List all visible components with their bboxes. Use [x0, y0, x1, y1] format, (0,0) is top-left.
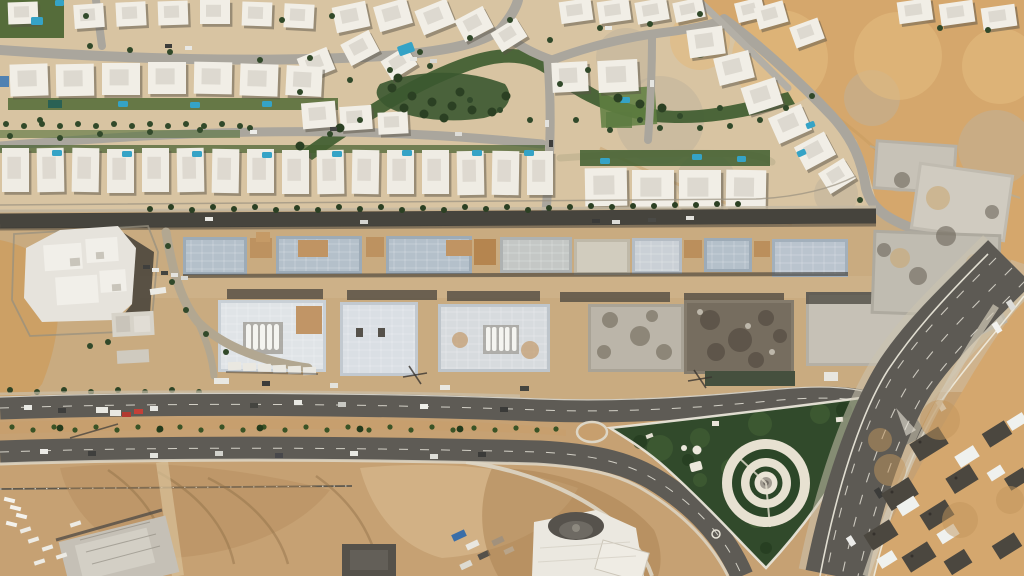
tree-boundary-20	[567, 204, 573, 210]
tree-boundary-28	[735, 201, 741, 207]
car-avenue-upper-0	[24, 405, 32, 410]
vehicle-site-road-2	[330, 383, 338, 388]
silo-group-2-2	[499, 327, 504, 351]
lawn-walkway	[0, 130, 240, 138]
villa-rowE-4-roof	[147, 157, 161, 179]
car-compound-7	[650, 80, 654, 87]
b9-mottle-0	[700, 310, 720, 330]
tree-compound-31	[783, 105, 789, 111]
tree-site-3	[203, 331, 209, 337]
ne-slab-mottle-4	[877, 243, 891, 257]
villa-rowA-0-roof	[14, 6, 29, 18]
tree-park-6	[400, 104, 409, 113]
tree-compound-36	[597, 25, 603, 31]
frame-core-dot-4	[911, 555, 914, 558]
roadworks-trucks-1	[110, 410, 121, 416]
villa-midrows-4-roof	[606, 66, 627, 83]
podium-1	[183, 237, 247, 275]
villa-cluster-right-2-roof	[687, 178, 708, 197]
car-parking-2	[161, 271, 168, 275]
median-bush-15	[324, 427, 329, 432]
tree-park-14	[502, 92, 511, 101]
tree-park-3	[448, 102, 457, 111]
tree-compound-22	[677, 113, 683, 119]
podium-7	[704, 238, 752, 272]
villa-rowE-15-roof	[532, 160, 545, 182]
trailer-row-0	[228, 362, 241, 370]
car-compound-6	[549, 140, 553, 147]
tree-boundary-0	[147, 206, 153, 212]
mall-roof-panel-1	[85, 237, 119, 263]
b8-mottle-4	[646, 310, 658, 322]
tree-boundary-5	[252, 204, 258, 210]
villa-rowE-10-roof	[357, 159, 371, 181]
villa-midrows-0-roof	[308, 106, 326, 120]
villa-staircase-0-roof	[694, 32, 714, 48]
building-b6	[340, 302, 418, 376]
triangle-mottle-dark-2	[760, 542, 772, 554]
silo-group-2-4	[512, 327, 517, 351]
b7-sand-patch-0	[452, 332, 468, 348]
desert-br-mottle-0	[920, 400, 960, 440]
tree-boundary-14	[441, 207, 447, 213]
villa-rowE-5-roof	[182, 157, 196, 179]
b6-openings-0	[356, 328, 363, 337]
pool-1	[55, 0, 64, 6]
car-avenue-lower-1	[88, 451, 96, 456]
b8-mottle-1	[630, 326, 650, 346]
villa-rowE-3-roof	[112, 158, 126, 180]
tree-compound-7	[347, 77, 353, 83]
ne-slab-mottle-2	[985, 205, 999, 219]
car-compound-4	[605, 26, 612, 30]
car-compound-1	[185, 46, 192, 50]
frame-core-dot-3	[873, 533, 876, 536]
frame-core-dot-0	[919, 441, 922, 444]
aerial-photo-stage	[0, 0, 1024, 576]
tree-site-4	[223, 349, 229, 355]
pool-17	[737, 156, 746, 162]
desert-br-mottle-1	[874, 454, 906, 486]
tree-site-1	[169, 279, 175, 285]
tree-compound-14	[327, 131, 333, 137]
tree-compound-56	[165, 123, 171, 129]
b7-sand-patch-1	[521, 341, 539, 359]
podium-block-1	[256, 232, 270, 242]
blue-tarp	[0, 76, 9, 87]
tree-compound-29	[727, 123, 733, 129]
b9-mottle-1	[728, 328, 752, 352]
tree-compound-57	[183, 121, 189, 127]
villa-rowC-5-roof	[247, 70, 267, 87]
pool-9	[192, 151, 202, 157]
car-compound-9	[330, 127, 337, 131]
podium-tan-4	[684, 240, 702, 258]
frame-core-dot-2	[929, 513, 932, 516]
row2-north-shadow-1	[347, 290, 437, 300]
car-avenue-lower-4	[275, 453, 283, 458]
tree-compound-1	[127, 47, 133, 53]
pool-10	[262, 152, 272, 158]
median-bush-17	[366, 427, 371, 432]
median-bush-18	[387, 424, 392, 429]
tree-park-0	[388, 84, 397, 93]
car-avenue-upper-6	[420, 404, 428, 409]
villa-rowC-2-roof	[110, 69, 129, 85]
tree-boundary-2	[189, 207, 195, 213]
median-bush-19	[408, 427, 413, 432]
ne-slab-mottle-0	[894, 172, 910, 188]
car-compound-2	[410, 57, 417, 61]
tree-compound-32	[809, 93, 815, 99]
median-palm-2	[257, 425, 264, 432]
trailer-row-1	[243, 363, 256, 371]
tree-park-12	[394, 74, 403, 83]
tree-compound-5	[417, 49, 423, 55]
car-boundary-road-0	[205, 217, 213, 221]
tree-boundary-26	[693, 202, 699, 208]
tree-compound-58	[201, 123, 207, 129]
tree-park-9	[614, 94, 623, 103]
b9-specks-1	[745, 323, 751, 329]
median-bush-3	[72, 427, 77, 432]
villa-midrows-3-roof	[559, 68, 578, 84]
tree-compound-19	[57, 135, 63, 141]
pool-16	[692, 154, 702, 160]
tree-compound-52	[93, 123, 99, 129]
car-avenue-lower-3	[215, 451, 223, 456]
tree-boundary-12	[399, 207, 405, 213]
villa-rowC-4-roof	[201, 68, 220, 84]
pool-14	[524, 150, 534, 156]
car-parking-3	[171, 273, 178, 277]
median-bush-13	[282, 427, 287, 432]
car-boundary-road-5	[360, 220, 368, 224]
white-shed-east	[824, 372, 838, 381]
roadworks-trucks-2	[122, 412, 131, 417]
median-bush-8	[177, 424, 182, 429]
tree-compound-49	[39, 121, 45, 127]
tree-compound-9	[427, 63, 433, 69]
villa-rowE-8-roof	[287, 159, 301, 181]
tree-compound-37	[647, 21, 653, 27]
lawn-cluster	[606, 112, 632, 128]
podium-8	[772, 239, 848, 277]
pool-11	[332, 151, 342, 157]
median-palm-0	[57, 425, 64, 432]
median-bush-4	[93, 424, 98, 429]
tree-boundary-25	[672, 202, 678, 208]
tree-compound-8	[387, 67, 393, 73]
median-bush-24	[513, 425, 518, 430]
tree-compound-11	[497, 107, 503, 113]
tree-compound-55	[147, 121, 153, 127]
tree-boundary-18	[525, 207, 531, 213]
tree-boundary-8	[315, 207, 321, 213]
pool-3	[190, 102, 200, 108]
desert-light-patch-1	[854, 12, 942, 100]
car-compound-0	[165, 44, 172, 48]
car-boundary-road-3	[648, 218, 656, 222]
median-bush-16	[345, 424, 350, 429]
villa-rowC-0-roof	[17, 70, 37, 87]
median-palm-3	[357, 426, 364, 433]
tree-compound-38	[697, 11, 703, 17]
villa-cluster-right-3-roof	[734, 177, 754, 196]
villa-cluster-right-1-roof	[640, 178, 661, 197]
tree-compound-21	[637, 117, 643, 123]
tree-compound-13	[357, 117, 363, 123]
car-avenue-lower-5	[350, 451, 358, 456]
tree-park-15	[296, 142, 305, 151]
row2-north-shadow-2	[447, 291, 540, 301]
tree-boundary-19	[546, 205, 552, 211]
pool-7	[52, 150, 62, 156]
vehicle-site-road-1	[262, 381, 270, 386]
silo-group-1-0	[246, 324, 251, 350]
median-bush-26	[553, 426, 558, 431]
pool-12	[402, 150, 412, 156]
villa-rowE-1-roof	[42, 157, 56, 179]
tree-compound-50	[57, 123, 63, 129]
b9-mottle-2	[758, 310, 774, 326]
tree-compound-44	[857, 197, 863, 203]
villa-rowE-2-roof	[77, 157, 91, 179]
tree-compound-33	[467, 35, 473, 41]
tree-boundary-27	[714, 201, 720, 207]
pool-0	[31, 17, 43, 25]
tree-compound-17	[147, 129, 153, 135]
villa-necorner-2-roof	[988, 9, 1006, 22]
tree-compound-34	[507, 17, 513, 23]
car-avenue-lower-6	[430, 454, 438, 459]
car-avenue-lower-7	[478, 452, 486, 457]
tree-park-7	[420, 110, 429, 119]
tree-compound-35	[547, 37, 553, 43]
ne-slab-mottle-3	[909, 267, 927, 285]
triangle-plaza-2	[681, 445, 687, 451]
tree-compound-54	[129, 123, 135, 129]
median-bush-14	[303, 424, 308, 429]
b9-specks-0	[697, 309, 703, 315]
tree-compound-28	[697, 125, 703, 131]
tree-park-5	[488, 108, 497, 117]
tree-boundary-17	[504, 204, 510, 210]
silo-group-2-1	[492, 327, 497, 351]
pool-15	[600, 158, 610, 164]
tree-compound-53	[111, 121, 117, 127]
car-parking-4	[181, 276, 188, 280]
villa-rowE-0-roof	[7, 157, 21, 179]
tree-compound-10	[467, 97, 473, 103]
villa-rowC-1-roof	[63, 70, 82, 86]
car-boundary-road-2	[612, 220, 620, 224]
tree-compound-12	[527, 117, 533, 123]
tree-compound-51	[75, 121, 81, 127]
tree-park-10	[636, 100, 645, 109]
median-bush-6	[135, 424, 140, 429]
tree-boundary-7	[294, 205, 300, 211]
tree-compound-30	[757, 117, 763, 123]
tree-boundary-10	[357, 206, 363, 212]
car-compound-3	[430, 59, 437, 63]
street-vertical-2	[648, 36, 652, 140]
podium-tan-3	[474, 239, 496, 265]
tree-boundary-3	[210, 204, 216, 210]
tree-compound-24	[557, 81, 563, 87]
triangle-plaza-1	[693, 446, 702, 455]
tree-compound-3	[257, 57, 263, 63]
median-bush-11	[240, 427, 245, 432]
villa-rowA-5-roof	[248, 7, 263, 20]
silo-group-2-3	[505, 327, 510, 351]
b9-specks-2	[769, 349, 775, 355]
silo-group-1-3	[267, 324, 272, 350]
median-bush-10	[219, 424, 224, 429]
silo-group-1-4	[274, 324, 279, 350]
mall-roof-unit-1	[96, 252, 104, 260]
dark-shed	[705, 371, 795, 386]
dome-center	[572, 524, 580, 532]
villa-topmid-1-roof	[604, 3, 621, 16]
b8-mottle-3	[597, 345, 611, 359]
villa-rowA-4-roof	[206, 5, 221, 17]
shed-2	[117, 349, 150, 364]
tree-compound-39	[83, 13, 89, 19]
villa-topmid-0-roof	[566, 3, 583, 16]
silo-group-2-0	[486, 327, 491, 351]
mall-roof-panel-0	[43, 243, 83, 272]
tree-boundary-6	[273, 207, 279, 213]
median-bush-22	[471, 425, 476, 430]
villa-rowE-14-roof	[497, 160, 511, 182]
car-avenue-lower-0	[40, 449, 48, 454]
villa-rowA-3-roof	[164, 6, 179, 19]
podium-tan-5	[754, 241, 770, 257]
tree-compound-2	[167, 49, 173, 55]
tree-compound-60	[237, 123, 243, 129]
tree-compound-47	[3, 121, 9, 127]
villa-rowE-12-roof	[427, 159, 441, 181]
car-compound-5	[545, 120, 549, 127]
villa-rowC-3-roof	[156, 68, 175, 84]
car-compound-8	[250, 130, 257, 134]
b9-mottle-4	[748, 352, 764, 368]
b8-mottle-0	[602, 312, 618, 328]
triangle-mottle-light-1	[690, 428, 710, 448]
villa-necorner-1-roof	[946, 5, 964, 18]
desert-br-mottle-3	[996, 486, 1024, 514]
mall-roof-unit-2	[112, 284, 121, 292]
silo-group-1-1	[253, 324, 258, 350]
triangle-sign-0	[712, 421, 719, 426]
boundary-road	[0, 216, 876, 221]
tree-compound-41	[329, 13, 335, 19]
pool-4	[262, 101, 272, 107]
tree-park-11	[658, 104, 667, 113]
tree-compound-46	[7, 133, 13, 139]
median-palm-4	[457, 426, 464, 433]
tree-boundary-4	[231, 206, 237, 212]
median-bush-2	[51, 424, 56, 429]
frame-core-dot-1	[891, 491, 894, 494]
satellite-image	[0, 0, 1024, 576]
row2-north-shadow-3	[560, 292, 670, 302]
car-avenue-upper-2	[150, 406, 158, 411]
tree-boundary-23	[630, 203, 636, 209]
tree-compound-40	[279, 17, 285, 23]
shed-1-roofA	[116, 316, 131, 333]
ne-slab-mottle-1	[936, 226, 956, 246]
tree-compound-25	[585, 67, 591, 73]
villa-rowA-2-roof	[122, 6, 138, 19]
vehicle-site-road-0	[214, 378, 229, 384]
vehicle-site-road-4	[520, 386, 529, 391]
median-bush-25	[534, 427, 539, 432]
shed-1-roofB	[134, 316, 151, 333]
podium-6	[632, 238, 682, 274]
podium-tan-2	[366, 237, 384, 257]
tree-compound-26	[607, 127, 613, 133]
villa-rowA-6-roof	[290, 8, 306, 21]
car-avenue-upper-5	[338, 402, 346, 407]
vehicle-site-road-3	[440, 385, 450, 390]
car-avenue-upper-1	[58, 408, 66, 413]
car-compound-10	[455, 132, 462, 136]
roadworks-trucks-3	[134, 409, 143, 414]
b9-mottle-3	[707, 343, 725, 361]
tree-compound-20	[573, 117, 579, 123]
desert-br-mottle-2	[942, 502, 978, 538]
tree-park-1	[408, 92, 417, 101]
villa-rowE-11-roof	[392, 159, 406, 181]
b6-openings-1	[378, 328, 385, 337]
tree-site-2	[183, 307, 189, 313]
b8-mottle-2	[656, 344, 672, 360]
frame-core-dot-5	[955, 477, 958, 480]
tree-compound-0	[87, 43, 93, 49]
villa-necorner-0-roof	[904, 3, 922, 16]
roadworks-trucks-0	[96, 407, 108, 413]
tree-boundary-24	[651, 203, 657, 209]
tree-compound-4	[307, 55, 313, 61]
median-bush-20	[429, 424, 434, 429]
podium-court-1	[298, 240, 328, 257]
podium-5	[574, 239, 630, 275]
car-avenue-upper-7	[500, 407, 508, 412]
car-boundary-road-4	[686, 216, 694, 220]
lap-pool	[48, 100, 62, 108]
mall-roof-unit-0	[70, 258, 81, 267]
tree-park-8	[440, 114, 449, 123]
tree-park-4	[468, 106, 477, 115]
tree-boundary-13	[420, 205, 426, 211]
tree-compound-48	[21, 123, 27, 129]
mall-roof-panel-2	[55, 275, 99, 306]
tree-road-north-0	[7, 387, 13, 393]
villa-rowE-7-roof	[252, 158, 266, 180]
tree-boundary-11	[378, 204, 384, 210]
triangle-mottle-light-2	[748, 412, 772, 436]
car-avenue-lower-2	[150, 453, 158, 458]
median-bush-9	[198, 427, 203, 432]
tree-boundary-21	[588, 203, 594, 209]
trailer-row-3	[273, 365, 286, 373]
desert-br-mottle-4	[868, 428, 892, 452]
triangle-mottle-light-3	[810, 404, 830, 424]
villa-rowE-6-roof	[217, 158, 231, 180]
tree-boundary-15	[462, 204, 468, 210]
